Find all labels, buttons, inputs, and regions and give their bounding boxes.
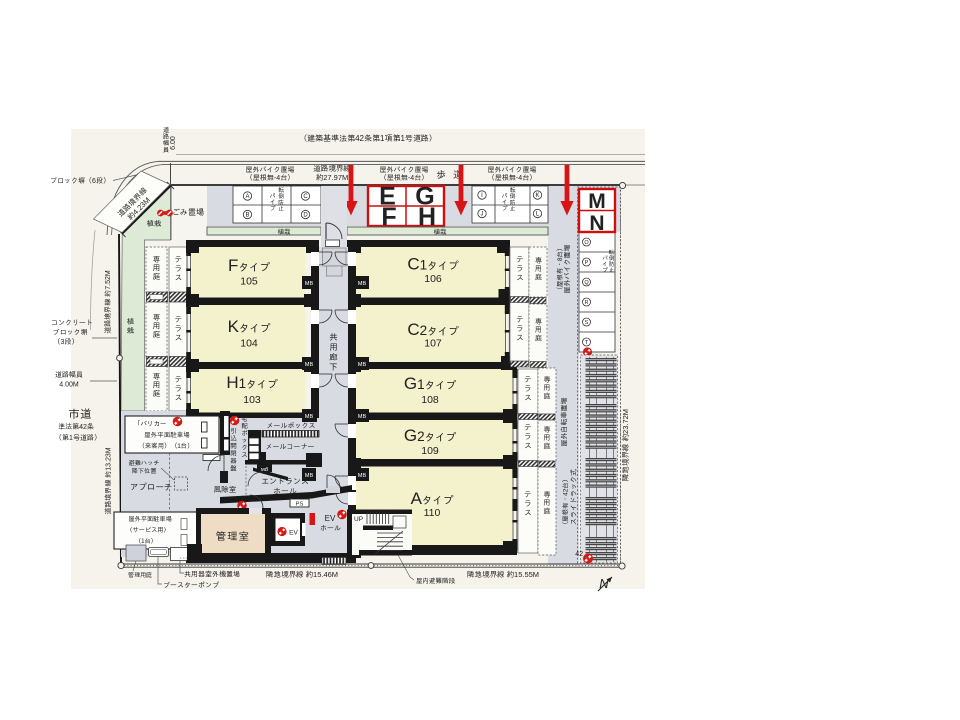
svg-text:MB: MB bbox=[358, 472, 367, 478]
svg-text:S: S bbox=[585, 319, 589, 325]
svg-text:パイプ: パイプ bbox=[502, 193, 508, 211]
svg-text:テラス: テラス bbox=[516, 255, 524, 281]
svg-text:専用庭: 専用庭 bbox=[153, 255, 161, 280]
svg-text:（建築基準法第42条第1項第1号道路）: （建築基準法第42条第1項第1号道路） bbox=[299, 134, 437, 143]
svg-text:道路境界線 約7.52M: 道路境界線 約7.52M bbox=[104, 270, 111, 334]
svg-text:（サービス用）: （サービス用） bbox=[126, 526, 169, 533]
svg-text:降下位置: 降下位置 bbox=[132, 467, 157, 474]
svg-text:K: K bbox=[535, 192, 539, 198]
svg-text:（屋根無-4台）: （屋根無-4台） bbox=[380, 174, 428, 181]
svg-text:ホール: ホール bbox=[320, 525, 341, 532]
svg-text:4.00M: 4.00M bbox=[59, 381, 79, 388]
svg-text:O: O bbox=[584, 239, 589, 245]
svg-text:104: 104 bbox=[240, 339, 258, 349]
svg-text:スライドラック式: スライドラック式 bbox=[570, 468, 577, 525]
svg-text:EV: EV bbox=[289, 529, 298, 536]
svg-text:道路幅員: 道路幅員 bbox=[55, 371, 83, 378]
svg-text:F: F bbox=[381, 204, 396, 229]
svg-text:歩道: 歩道 bbox=[437, 169, 470, 180]
svg-text:パイプ: パイプ bbox=[270, 193, 276, 211]
svg-text:管理室: 管理室 bbox=[216, 531, 251, 542]
svg-text:管理用庭: 管理用庭 bbox=[128, 571, 152, 578]
svg-text:PS: PS bbox=[296, 501, 304, 507]
svg-text:ブースターポンプ: ブースターポンプ bbox=[163, 581, 220, 589]
svg-text:110: 110 bbox=[424, 508, 441, 518]
svg-text:テラス: テラス bbox=[175, 315, 183, 341]
svg-text:準法第42条: 準法第42条 bbox=[58, 422, 95, 430]
svg-text:屋外バイク置場: 屋外バイク置場 bbox=[380, 166, 429, 173]
svg-text:M: M bbox=[588, 190, 606, 211]
svg-text:道路境界線 約13.23M: 道路境界線 約13.23M bbox=[105, 447, 112, 514]
svg-text:（1台）: （1台） bbox=[135, 537, 157, 544]
svg-text:（屋根無-4台）: （屋根無-4台） bbox=[246, 174, 294, 181]
svg-text:植栽: 植栽 bbox=[147, 219, 163, 228]
svg-text:EV: EV bbox=[325, 514, 336, 522]
svg-text:106: 106 bbox=[424, 274, 442, 284]
svg-text:MB: MB bbox=[305, 361, 314, 367]
svg-text:103: 103 bbox=[243, 395, 261, 405]
svg-text:共用器室外機置場: 共用器室外機置場 bbox=[184, 571, 240, 578]
svg-text:アプローチ: アプローチ bbox=[130, 482, 173, 492]
svg-text:テラス: テラス bbox=[175, 255, 183, 281]
svg-text:転倒防止: 転倒防止 bbox=[609, 249, 615, 273]
svg-text:D: D bbox=[303, 212, 308, 218]
svg-text:屋外バイク置場: 屋外バイク置場 bbox=[564, 245, 571, 294]
svg-text:屋外平面駐車場: 屋外平面駐車場 bbox=[128, 515, 171, 522]
svg-text:屋外自転車置場: 屋外自転車置場 bbox=[560, 398, 568, 447]
svg-text:屋外バイク置場: 屋外バイク置場 bbox=[488, 166, 537, 173]
svg-text:メールコーナー: メールコーナー bbox=[266, 443, 315, 450]
svg-text:R: R bbox=[585, 299, 589, 305]
svg-text:109: 109 bbox=[421, 446, 439, 456]
svg-text:H: H bbox=[418, 204, 436, 229]
svg-text:転倒防止: 転倒防止 bbox=[278, 187, 284, 212]
svg-text:隣地境界線 約23.72M: 隣地境界線 約23.72M bbox=[621, 409, 630, 481]
svg-text:A: A bbox=[245, 193, 249, 199]
svg-text:テラス: テラス bbox=[175, 375, 183, 401]
svg-text:（屋根無-4台）: （屋根無-4台） bbox=[488, 174, 536, 181]
svg-text:植栽: 植栽 bbox=[433, 228, 448, 235]
svg-text:107: 107 bbox=[424, 339, 442, 349]
svg-text:テラス: テラス bbox=[524, 423, 532, 449]
svg-text:P: P bbox=[585, 259, 589, 265]
svg-text:「バリカー: 「バリカー bbox=[134, 420, 167, 427]
svg-text:植栽: 植栽 bbox=[127, 317, 135, 335]
svg-text:コンクリート: コンクリート bbox=[51, 319, 93, 326]
svg-text:テラス: テラス bbox=[524, 490, 532, 516]
svg-text:MB: MB bbox=[358, 413, 367, 419]
svg-text:専用庭: 専用庭 bbox=[543, 376, 551, 399]
svg-text:108: 108 bbox=[421, 395, 439, 405]
svg-text:屋外バイク置場: 屋外バイク置場 bbox=[246, 166, 295, 173]
svg-text:隣地境界線 約15.55M: 隣地境界線 約15.55M bbox=[467, 570, 539, 579]
svg-text:N: N bbox=[599, 577, 609, 590]
svg-text:専用庭: 専用庭 bbox=[153, 313, 161, 338]
svg-text:（第1号道路）: （第1号道路） bbox=[55, 433, 101, 441]
svg-text:N: N bbox=[589, 212, 604, 233]
svg-text:メールボックス: メールボックス bbox=[267, 422, 316, 429]
svg-text:（来客用）（1台）: （来客用）（1台） bbox=[138, 442, 194, 449]
svg-text:宅配ボックス: 宅配ボックス bbox=[241, 415, 248, 458]
svg-text:専用庭: 専用庭 bbox=[153, 372, 161, 397]
svg-text:約27.97M: 約27.97M bbox=[316, 173, 349, 181]
svg-text:（屋根有・42台）: （屋根有・42台） bbox=[562, 476, 569, 529]
svg-text:市道: 市道 bbox=[69, 408, 93, 420]
svg-text:引込開閉器盤: 引込開閉器盤 bbox=[230, 427, 237, 472]
svg-text:UP: UP bbox=[354, 515, 363, 522]
svg-text:屋内避難階段: 屋内避難階段 bbox=[416, 577, 456, 584]
svg-text:パイプ: パイプ bbox=[602, 255, 608, 273]
svg-text:42: 42 bbox=[575, 550, 583, 557]
svg-text:Q: Q bbox=[584, 279, 589, 285]
svg-text:専用庭: 専用庭 bbox=[535, 318, 543, 341]
svg-text:避難ハッチ: 避難ハッチ bbox=[129, 460, 160, 466]
svg-text:テラス: テラス bbox=[524, 375, 532, 401]
svg-text:専用庭: 専用庭 bbox=[543, 491, 551, 514]
svg-text:植栽: 植栽 bbox=[277, 228, 292, 235]
svg-text:（3段）: （3段） bbox=[54, 338, 79, 345]
svg-text:（屋根有・8台）: （屋根有・8台） bbox=[556, 244, 563, 293]
svg-text:C: C bbox=[303, 193, 308, 199]
svg-text:ごみ置場: ごみ置場 bbox=[172, 208, 204, 217]
svg-text:6.00: 6.00 bbox=[169, 136, 176, 150]
svg-text:転倒防止: 転倒防止 bbox=[510, 187, 516, 212]
svg-text:テラス: テラス bbox=[516, 315, 524, 341]
svg-text:専用庭: 専用庭 bbox=[535, 257, 543, 280]
svg-text:MB: MB bbox=[358, 361, 367, 367]
svg-text:MB: MB bbox=[305, 413, 314, 419]
svg-text:105: 105 bbox=[240, 277, 258, 287]
svg-text:屋外平面駐車場: 屋外平面駐車場 bbox=[144, 431, 190, 438]
svg-text:ホール: ホール bbox=[273, 487, 297, 495]
svg-text:ブロック塀: ブロック塀 bbox=[53, 328, 88, 336]
svg-text:風除室: 風除室 bbox=[214, 485, 237, 494]
svg-text:隣地境界線 約15.46M: 隣地境界線 約15.46M bbox=[266, 570, 338, 579]
svg-text:エントランス: エントランス bbox=[261, 477, 309, 485]
svg-text:専用庭: 専用庭 bbox=[543, 426, 551, 449]
svg-text:MB: MB bbox=[305, 280, 314, 286]
svg-text:道路境界線: 道路境界線 bbox=[313, 164, 351, 173]
svg-text:MB: MB bbox=[358, 280, 367, 286]
svg-text:J: J bbox=[481, 211, 484, 217]
svg-text:ブロック塀（6段）: ブロック塀（6段） bbox=[50, 176, 110, 184]
svg-text:B: B bbox=[245, 212, 249, 218]
